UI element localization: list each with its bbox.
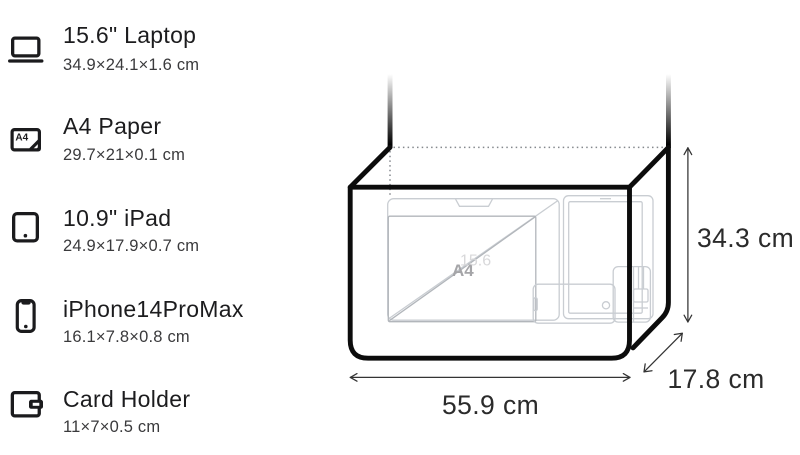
- svg-text:17.8 cm: 17.8 cm: [668, 364, 765, 394]
- svg-text:55.9 cm: 55.9 cm: [442, 390, 539, 420]
- svg-text:34.3 cm: 34.3 cm: [697, 223, 794, 253]
- svg-text:15.6: 15.6: [460, 253, 491, 270]
